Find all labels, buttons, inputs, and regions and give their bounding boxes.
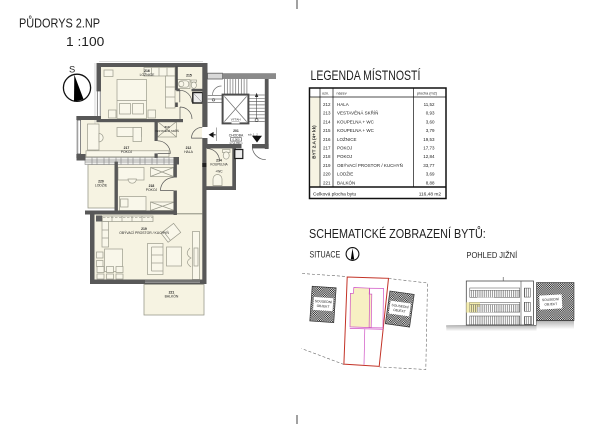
- svg-text:BALKÓN: BALKÓN: [337, 179, 355, 185]
- svg-text:LODŽIE: LODŽIE: [95, 183, 108, 188]
- svg-text:215: 215: [186, 74, 192, 78]
- svg-text:215: 215: [323, 128, 331, 133]
- svg-text:33,77: 33,77: [423, 163, 435, 168]
- svg-text:219: 219: [323, 163, 331, 168]
- svg-text:+WC: +WC: [215, 170, 223, 174]
- svg-text:3,60: 3,60: [426, 119, 435, 124]
- svg-text:213: 213: [323, 111, 331, 116]
- svg-text:BALKÓN: BALKÓN: [165, 294, 179, 299]
- svg-text:8,88: 8,88: [426, 180, 435, 185]
- svg-text:S: S: [69, 63, 75, 74]
- svg-text:PŮDORYS 2.NP: PŮDORYS 2.NP: [19, 15, 100, 31]
- svg-text:ozn.: ozn.: [322, 92, 329, 96]
- svg-text:LODŽIE: LODŽIE: [337, 170, 353, 177]
- svg-text:HALA: HALA: [337, 102, 349, 107]
- svg-text:HALA: HALA: [184, 150, 194, 154]
- svg-text:SITUACE: SITUACE: [310, 248, 341, 259]
- svg-text:Celková plocha bytu: Celková plocha bytu: [313, 191, 357, 197]
- svg-text:BYT 2.A (4+ kk): BYT 2.A (4+ kk): [311, 125, 316, 159]
- svg-text:214: 214: [323, 119, 331, 124]
- svg-text:POKOJ: POKOJ: [337, 146, 352, 151]
- svg-text:OBÝVACÍ PROSTOR / KUCHYŇ: OBÝVACÍ PROSTOR / KUCHYŇ: [119, 231, 169, 235]
- svg-text:220: 220: [323, 172, 331, 177]
- svg-text:116,48 m2: 116,48 m2: [419, 191, 442, 197]
- svg-text:POKOJ: POKOJ: [337, 154, 352, 159]
- svg-text:plocha (m2): plocha (m2): [417, 92, 438, 96]
- svg-text:POKOJ: POKOJ: [121, 150, 133, 154]
- svg-text:3,69: 3,69: [426, 172, 435, 177]
- svg-text:OBJEKT: OBJEKT: [544, 302, 557, 307]
- svg-text:0,93: 0,93: [426, 111, 435, 116]
- svg-text:LOŽNICE: LOŽNICE: [140, 72, 155, 77]
- svg-text:3,79: 3,79: [426, 128, 435, 133]
- svg-text:212: 212: [323, 102, 331, 107]
- svg-text:12,84: 12,84: [423, 154, 435, 159]
- svg-text:217: 217: [323, 146, 331, 151]
- svg-text:216: 216: [323, 137, 331, 142]
- svg-text:OBÝVACÍ PROSTOR / KUCHYŇ: OBÝVACÍ PROSTOR / KUCHYŇ: [337, 162, 403, 168]
- svg-text:název: název: [337, 92, 347, 96]
- svg-text:KOUPELNA: KOUPELNA: [210, 163, 228, 167]
- svg-text:1,7+4,350 m: 1,7+4,350 m: [229, 142, 242, 145]
- svg-text:VESTAVĚNÁ SKŘÍŇ: VESTAVĚNÁ SKŘÍŇ: [337, 109, 378, 116]
- svg-text:11,52: 11,52: [424, 102, 435, 107]
- svg-text:19,53: 19,53: [423, 137, 435, 142]
- svg-text:POKOJ: POKOJ: [146, 188, 158, 192]
- svg-text:218: 218: [323, 154, 331, 159]
- svg-text:LEGENDA MÍSTNOSTÍ: LEGENDA MÍSTNOSTÍ: [310, 67, 420, 84]
- svg-text:221: 221: [323, 180, 331, 185]
- svg-text:0,000: 0,000: [233, 138, 240, 142]
- svg-text:KOUPELNA + WC: KOUPELNA + WC: [337, 128, 375, 133]
- svg-text:1 :100: 1 :100: [66, 34, 104, 49]
- svg-text:213: 213: [164, 125, 169, 129]
- svg-text:VÝTAH: VÝTAH: [231, 117, 241, 121]
- svg-text:LOŽNICE: LOŽNICE: [337, 135, 357, 142]
- svg-text:POHLED JIŽNÍ: POHLED JIŽNÍ: [467, 251, 518, 261]
- svg-text:SCHEMATICKÉ ZOBRAZENÍ BYTŮ:: SCHEMATICKÉ ZOBRAZENÍ BYTŮ:: [309, 226, 486, 241]
- svg-text:17,73: 17,73: [423, 146, 435, 151]
- svg-text:KOUPELNA + WC: KOUPELNA + WC: [337, 119, 375, 124]
